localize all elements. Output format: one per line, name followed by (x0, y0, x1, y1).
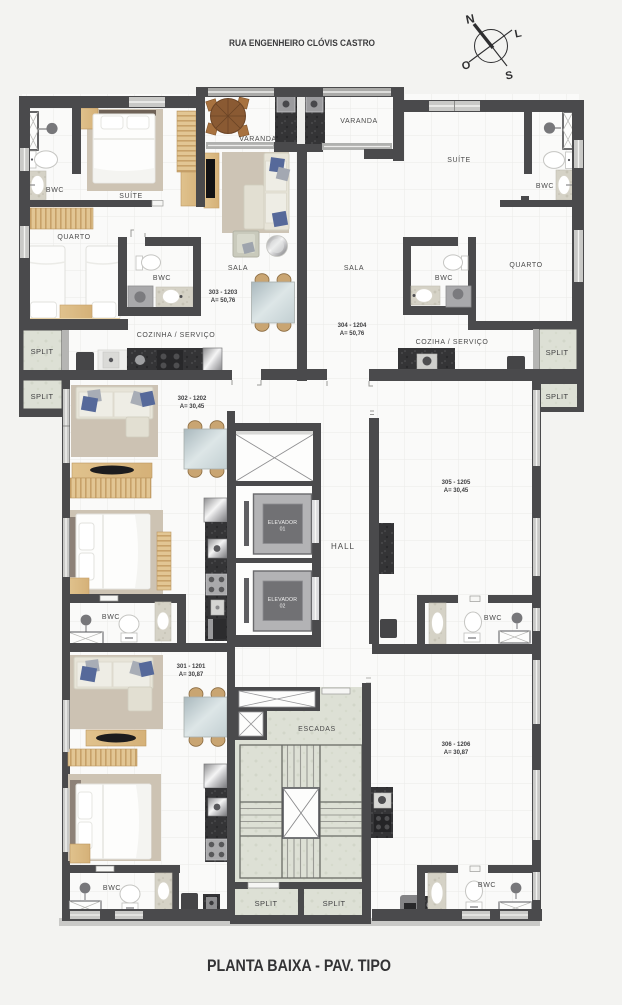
svg-text:SUÍTE: SUÍTE (119, 191, 143, 200)
svg-text:ELEVADOR: ELEVADOR (268, 520, 298, 526)
svg-text:01: 01 (280, 527, 286, 533)
svg-text:303 - 1203: 303 - 1203 (209, 290, 238, 296)
svg-text:SPLIT: SPLIT (31, 347, 54, 356)
svg-text:A= 30,87: A= 30,87 (179, 672, 204, 678)
svg-text:A= 50,76: A= 50,76 (211, 298, 236, 304)
svg-text:SPLIT: SPLIT (323, 899, 346, 908)
svg-text:SPLIT: SPLIT (31, 392, 54, 401)
svg-text:301 - 1201: 301 - 1201 (177, 664, 206, 670)
svg-text:S: S (504, 69, 514, 82)
svg-text:SALA: SALA (344, 265, 364, 272)
svg-text:SPLIT: SPLIT (546, 392, 569, 401)
svg-text:BWC: BWC (484, 615, 502, 622)
svg-text:A= 30,87: A= 30,87 (444, 750, 469, 756)
svg-text:306 - 1206: 306 - 1206 (442, 742, 471, 748)
svg-text:A= 30,45: A= 30,45 (180, 404, 205, 410)
svg-text:304 - 1204: 304 - 1204 (338, 323, 367, 329)
svg-text:COZINHA / SERVIÇO: COZINHA / SERVIÇO (137, 332, 216, 339)
svg-text:ELEVADOR: ELEVADOR (268, 597, 298, 603)
svg-text:QUARTO: QUARTO (509, 262, 542, 269)
svg-text:SPLIT: SPLIT (255, 899, 278, 908)
svg-text:VARANDA: VARANDA (340, 118, 378, 125)
svg-text:BWC: BWC (435, 275, 453, 282)
svg-text:BWC: BWC (478, 882, 496, 889)
svg-text:02: 02 (280, 604, 286, 610)
svg-text:SALA: SALA (228, 265, 248, 272)
svg-text:HALL: HALL (331, 542, 355, 551)
svg-text:BWC: BWC (153, 275, 171, 282)
svg-text:SPLIT: SPLIT (546, 348, 569, 357)
svg-text:302 - 1202: 302 - 1202 (178, 396, 207, 402)
svg-text:BWC: BWC (46, 187, 64, 194)
svg-text:COZIHA / SERVIÇO: COZIHA / SERVIÇO (416, 339, 489, 346)
svg-text:305 - 1205: 305 - 1205 (442, 480, 471, 486)
svg-text:A= 50,76: A= 50,76 (340, 331, 365, 337)
svg-text:L: L (514, 27, 523, 40)
svg-text:SUÍTE: SUÍTE (447, 155, 471, 164)
svg-text:RUA ENGENHEIRO CLÓVIS CASTRO: RUA ENGENHEIRO CLÓVIS CASTRO (229, 37, 375, 48)
svg-text:PLANTA BAIXA - PAV. TIPO: PLANTA BAIXA - PAV. TIPO (207, 956, 391, 975)
svg-text:QUARTO: QUARTO (57, 234, 90, 241)
svg-text:ESCADAS: ESCADAS (298, 726, 336, 733)
svg-text:N: N (464, 11, 475, 26)
svg-text:A= 30,45: A= 30,45 (444, 488, 469, 494)
svg-text:BWC: BWC (102, 614, 120, 621)
svg-text:BWC: BWC (103, 885, 121, 892)
svg-text:VARANDA: VARANDA (239, 136, 277, 143)
svg-text:BWC: BWC (536, 183, 554, 190)
